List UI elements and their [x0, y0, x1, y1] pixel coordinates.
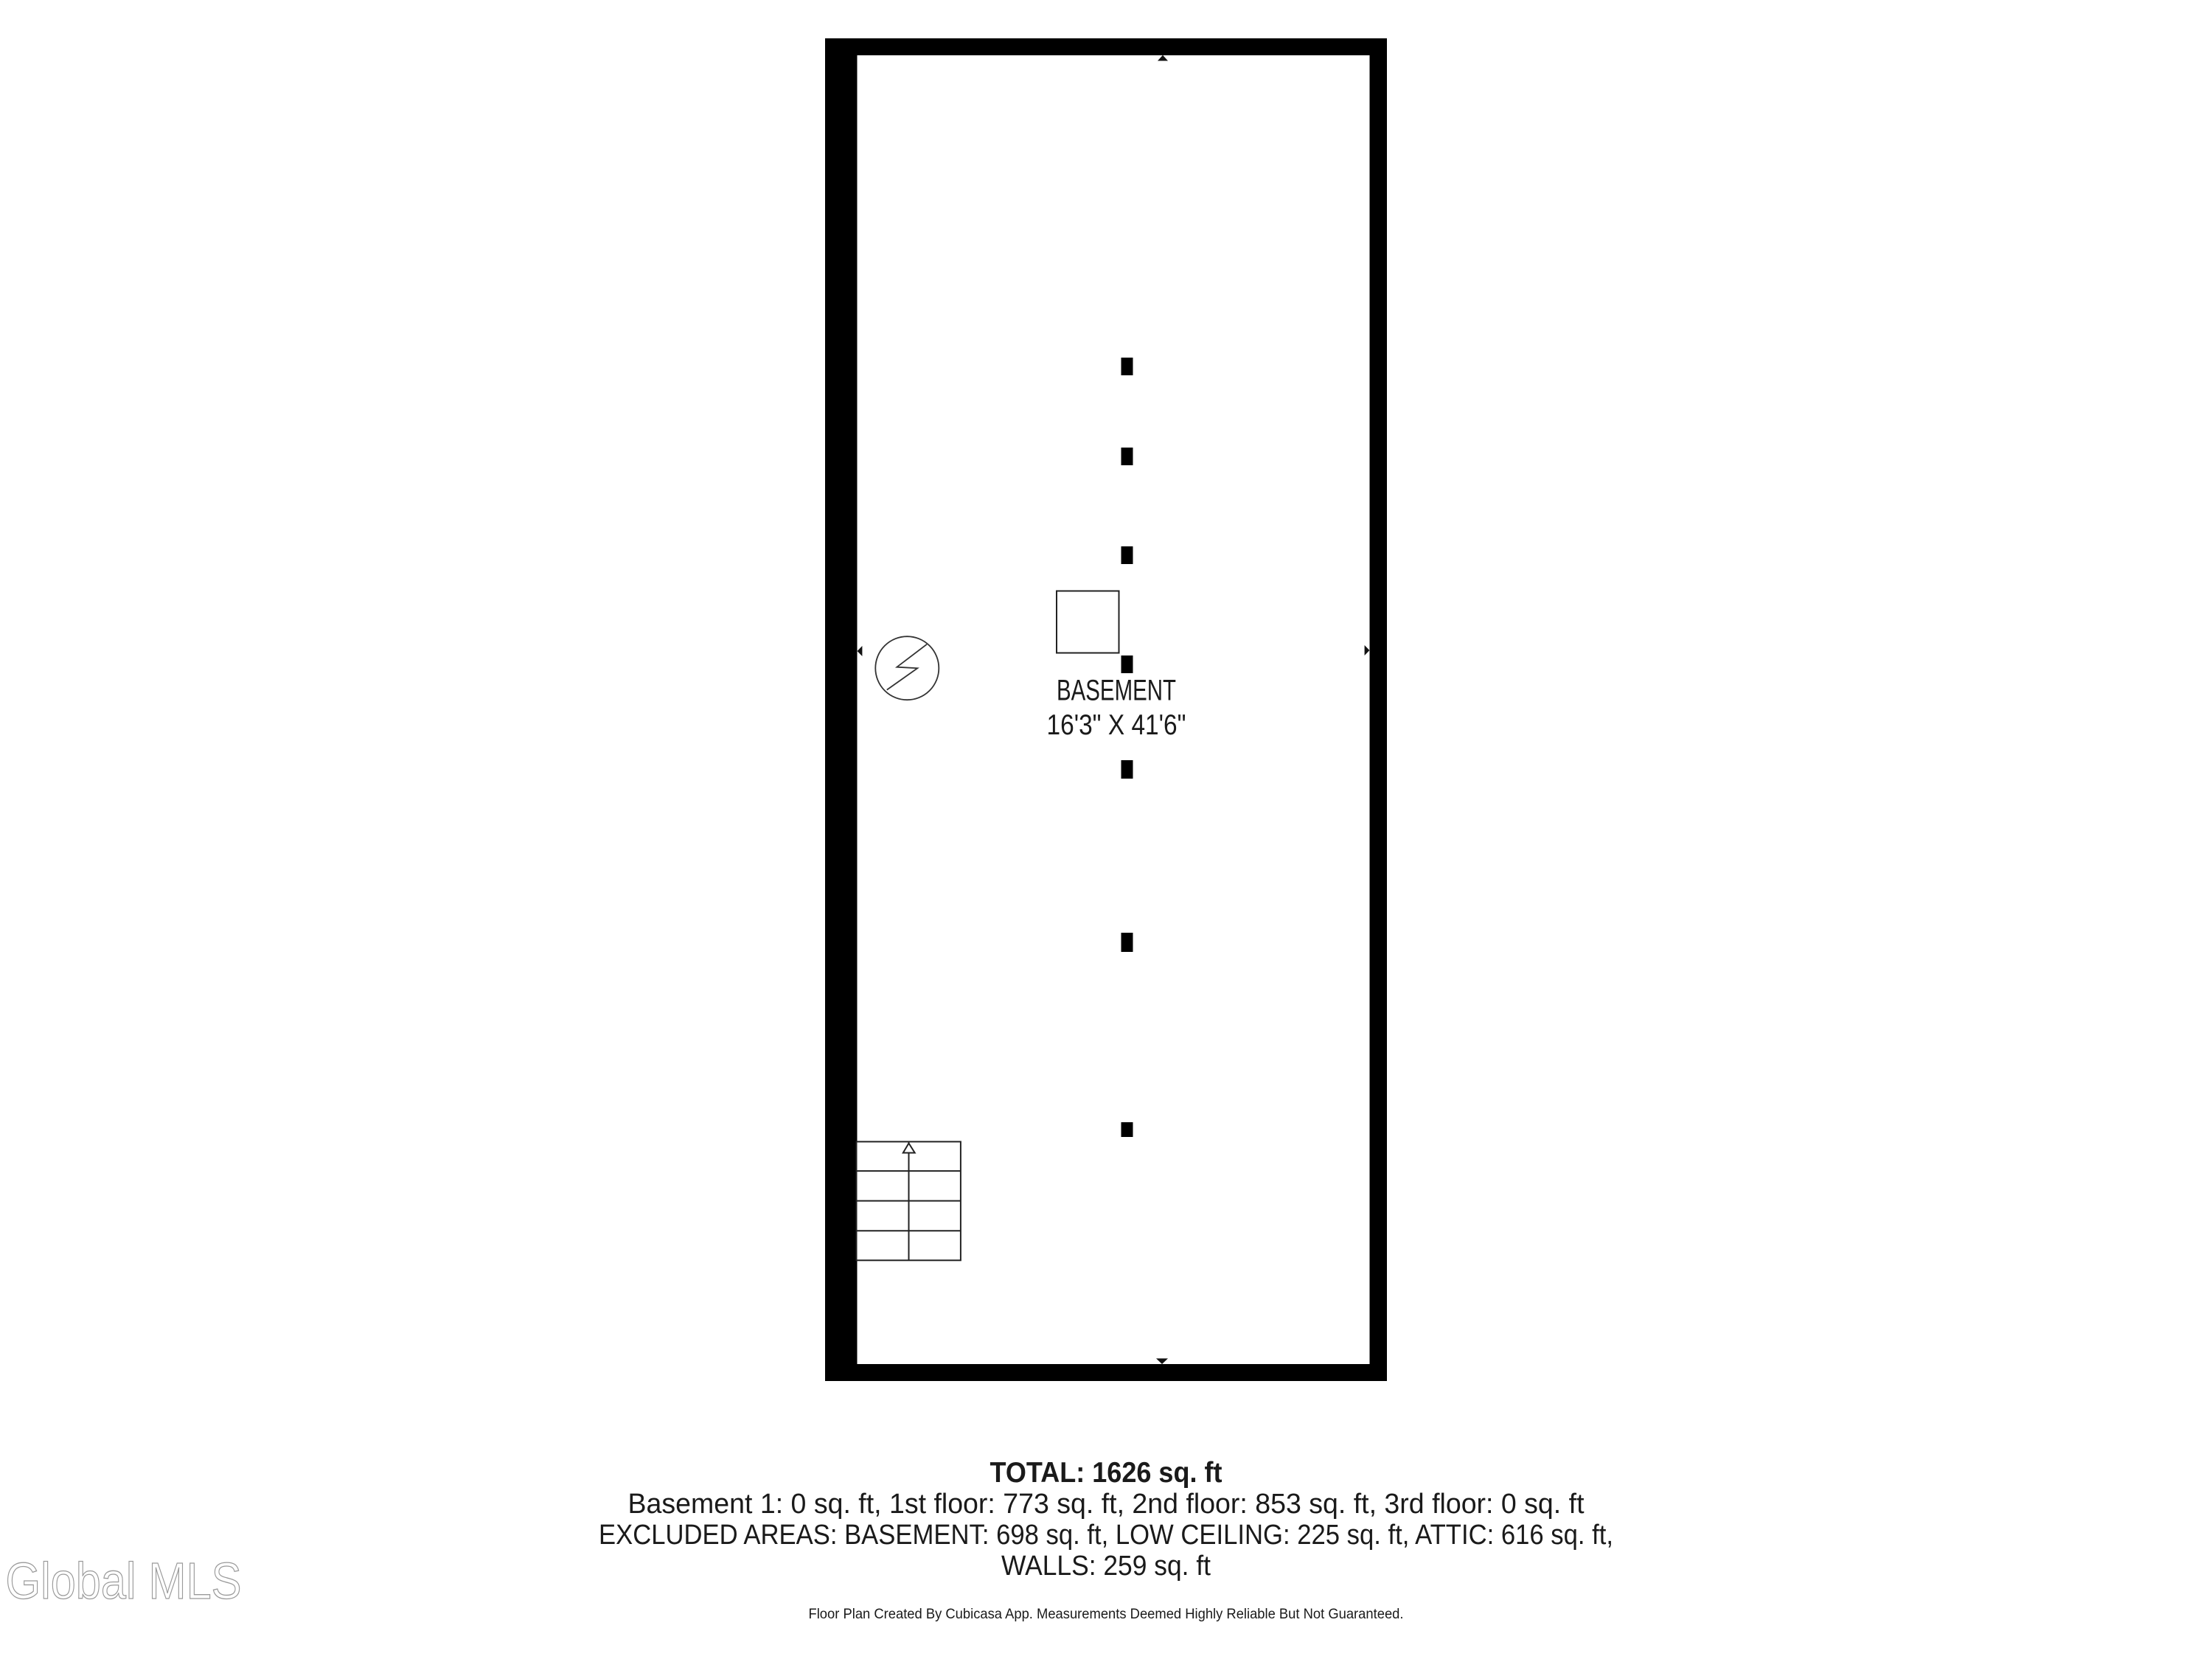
svg-text:TOTAL: 1626 sq. ft: TOTAL: 1626 sq. ft	[990, 1457, 1222, 1489]
svg-text:WALLS: 259 sq. ft: WALLS: 259 sq. ft	[1001, 1551, 1211, 1582]
svg-text:16'3" X 41'6": 16'3" X 41'6"	[1047, 709, 1186, 741]
svg-text:Global MLS: Global MLS	[6, 1552, 242, 1610]
svg-text:Basement 1: 0 sq. ft, 1st floo: Basement 1: 0 sq. ft, 1st floor: 773 sq.…	[628, 1489, 1585, 1520]
svg-text:BASEMENT: BASEMENT	[1057, 674, 1176, 706]
svg-text:Floor Plan Created By Cubicasa: Floor Plan Created By Cubicasa App. Meas…	[809, 1606, 1404, 1622]
svg-text:EXCLUDED AREAS: BASEMENT: 698: EXCLUDED AREAS: BASEMENT: 698 sq. ft, LO…	[599, 1520, 1613, 1551]
